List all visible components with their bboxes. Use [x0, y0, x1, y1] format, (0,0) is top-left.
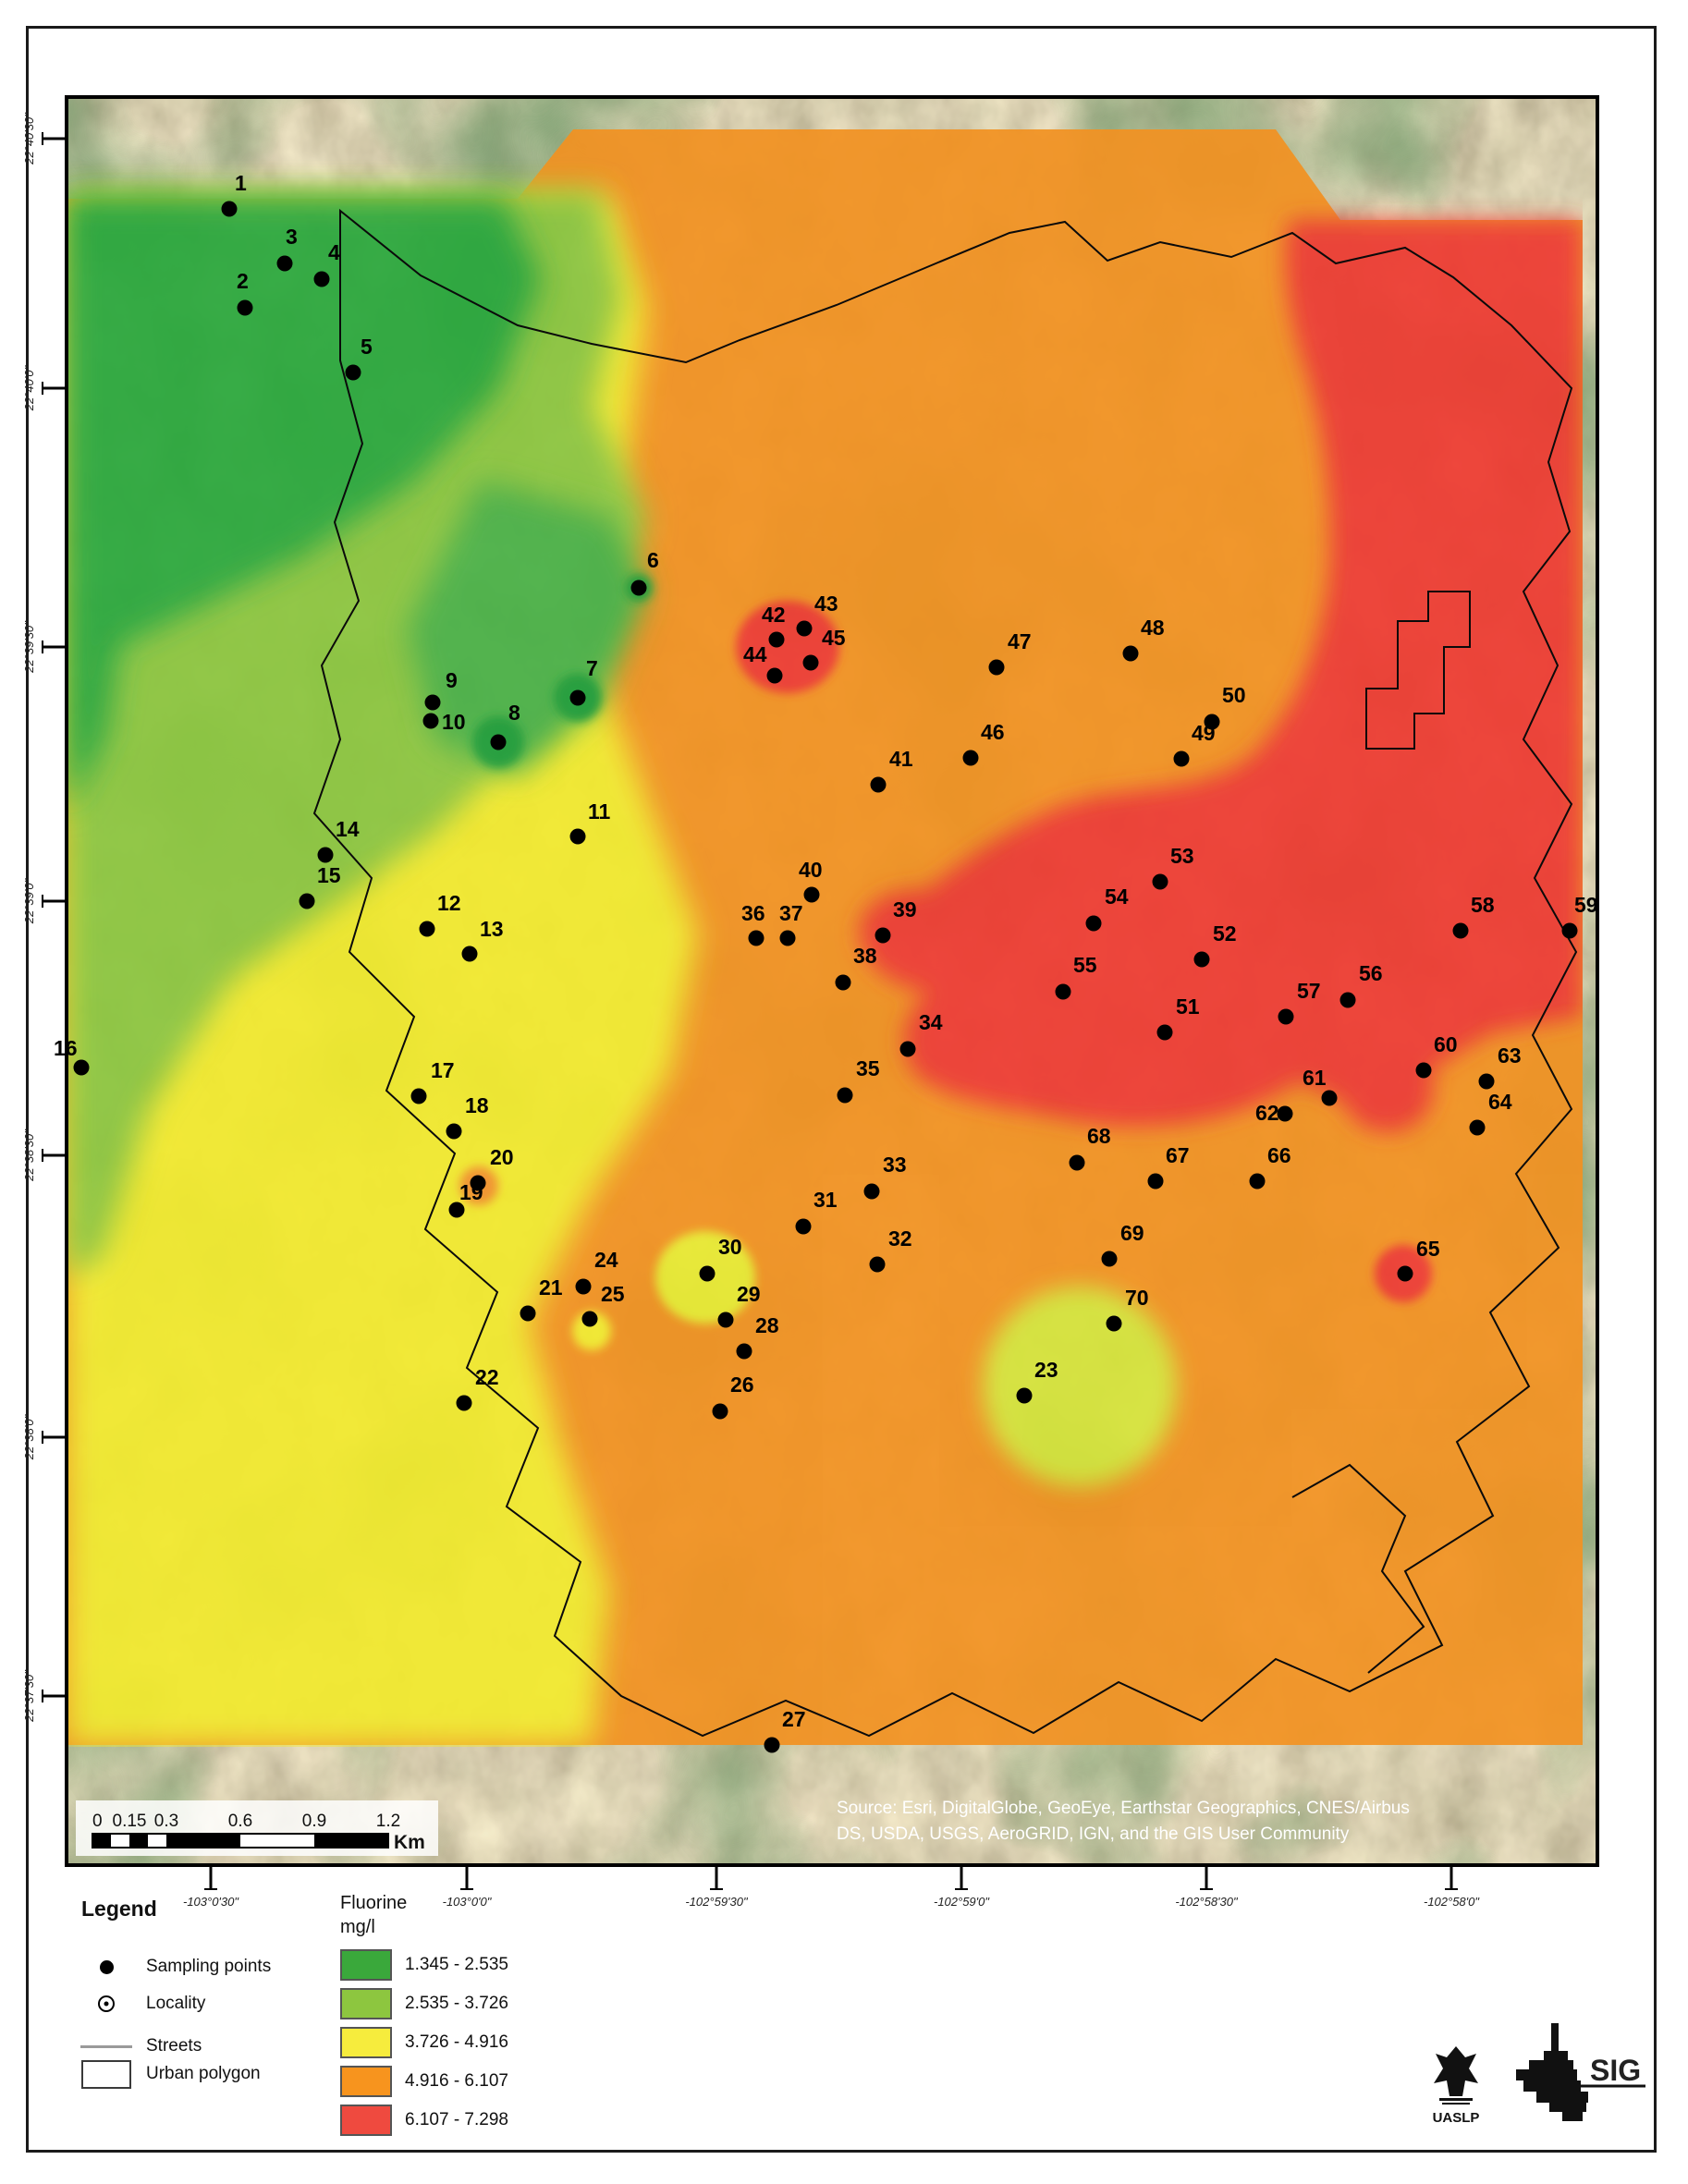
sampling-point-label: 30 — [718, 1235, 742, 1259]
sampling-point-dot — [796, 1219, 812, 1235]
sampling-point-label: 39 — [893, 897, 917, 921]
sampling-point-label: 51 — [1176, 994, 1200, 1019]
sampling-point-label: 20 — [490, 1145, 514, 1169]
sampling-point-dot — [764, 1738, 780, 1753]
sampling-point-label: 50 — [1222, 683, 1246, 707]
sampling-point-label: 53 — [1170, 844, 1194, 868]
sampling-point-label: 42 — [762, 603, 786, 627]
sampling-point-dot — [749, 931, 764, 946]
bottom-axis-label: -102°59'0" — [934, 1895, 990, 1909]
sampling-point-label: 23 — [1034, 1358, 1058, 1382]
fluorine-unit: mg/l — [340, 1917, 375, 1938]
sampling-point-label: 12 — [437, 891, 461, 915]
sampling-point-label: 45 — [822, 626, 846, 650]
sampling-point-label: 58 — [1471, 893, 1495, 917]
sampling-point-label: 59 — [1574, 893, 1598, 917]
sig-logo: SIG — [1516, 2023, 1645, 2121]
uaslp-logo: UASLP — [1433, 2046, 1480, 2126]
sampling-point-dot — [446, 1124, 462, 1140]
sampling-point-label: 17 — [431, 1058, 455, 1082]
sampling-point-dot — [700, 1266, 716, 1282]
sampling-point-dot — [804, 887, 820, 903]
attribution-line-1: Source: Esri, DigitalGlobe, GeoEye, Eart… — [837, 1799, 1410, 1818]
sampling-point-dot — [1453, 923, 1469, 939]
sampling-point-dot — [471, 1176, 486, 1191]
scale-bar-number: 0.15 — [113, 1812, 147, 1831]
sampling-point-dot — [1157, 1025, 1173, 1041]
urban-polygon-symbol — [80, 2059, 133, 2089]
sampling-point-label: 40 — [799, 858, 823, 882]
sampling-point-dot — [1416, 1063, 1432, 1079]
sampling-point-dot — [1398, 1266, 1413, 1282]
sampling-point-dot — [449, 1202, 465, 1218]
sampling-point-label: 21 — [539, 1275, 563, 1299]
locality-symbol — [80, 1989, 133, 2019]
sampling-point-label: 65 — [1416, 1237, 1440, 1261]
left-axis-label: 22°38'0" — [22, 1413, 36, 1460]
sampling-point-dot — [870, 1257, 886, 1273]
bottom-axis-label: -102°58'30" — [1175, 1895, 1239, 1909]
sampling-point-label: 41 — [889, 747, 913, 771]
sampling-point-label: 61 — [1303, 1066, 1327, 1090]
sampling-point-label: 7 — [586, 656, 598, 680]
sampling-point-dot — [314, 272, 330, 287]
sampling-point-label: 32 — [888, 1226, 912, 1251]
legend-item-label: Locality — [146, 1994, 205, 2014]
sampling-point-dot — [737, 1344, 752, 1360]
sampling-point-dot — [1107, 1316, 1122, 1332]
sampling-point-dot — [989, 660, 1005, 676]
sampling-point-dot — [576, 1279, 592, 1295]
sampling-point-dot — [1278, 1009, 1294, 1025]
sampling-point-label: 15 — [317, 863, 341, 887]
sampling-point-dot — [420, 921, 435, 937]
sampling-point-dot — [570, 829, 586, 845]
sampling-point-dot — [318, 848, 334, 863]
fluorine-class-range: 6.107 - 7.298 — [405, 2110, 508, 2130]
sampling-point-dot — [74, 1060, 90, 1076]
sampling-point-dot — [875, 928, 891, 944]
sampling-point-label: 3 — [286, 225, 298, 249]
bottom-axis-label: -103°0'0" — [443, 1895, 493, 1909]
legend-item-label: Streets — [146, 2036, 202, 2056]
sampling-point-dot — [1056, 984, 1071, 1000]
legend-title: Legend — [81, 1897, 157, 1922]
sampling-point-label: 35 — [856, 1056, 880, 1080]
sampling-point-dot — [1148, 1174, 1164, 1190]
sampling-point-label: 43 — [814, 592, 838, 616]
sampling-point-label: 4 — [328, 240, 340, 264]
sampling-point-label: 33 — [883, 1153, 907, 1177]
fluorine-class-row: 6.107 - 7.298 — [340, 2102, 508, 2139]
scale-bar: 00.150.30.60.91.2Km — [76, 1800, 438, 1856]
anomaly-yellowgreen-23-70 — [983, 1287, 1177, 1486]
fluorine-class-swatch — [340, 2066, 392, 2097]
fluorine-class-row: 2.535 - 3.726 — [340, 1985, 508, 2022]
sampling-point-label: 14 — [336, 817, 360, 841]
sampling-point-label: 25 — [601, 1282, 625, 1306]
sampling-point-dot — [803, 655, 819, 671]
sampling-point-dot — [1086, 916, 1102, 932]
sampling-point-label: 11 — [588, 799, 611, 824]
sampling-point-label: 8 — [508, 701, 520, 725]
fluorine-class-range: 2.535 - 3.726 — [405, 1994, 508, 2014]
fluorine-title: Fluorine — [340, 1893, 407, 1914]
fluorine-class-row: 3.726 - 4.916 — [340, 2024, 508, 2061]
sampling-point-dot — [769, 632, 785, 648]
sampling-point-dot — [1322, 1091, 1338, 1106]
fluorine-class-range: 4.916 - 6.107 — [405, 2071, 508, 2092]
scale-bar-number: 0.9 — [302, 1812, 326, 1831]
sampling-point-label: 67 — [1166, 1143, 1190, 1167]
scale-bar-number: 0.6 — [228, 1812, 252, 1831]
sampling-point-dot — [1278, 1106, 1293, 1122]
left-axis-label: 22°40'30" — [22, 112, 36, 165]
sampling-point-dot — [767, 668, 783, 684]
sampling-point-label: 66 — [1267, 1143, 1291, 1167]
sampling-point-label: 56 — [1359, 961, 1383, 985]
sampling-point-label: 46 — [981, 720, 1005, 744]
sampling-point-label: 44 — [743, 642, 767, 666]
sampling-point-label: 68 — [1087, 1124, 1111, 1148]
sampling-point-dot — [1205, 714, 1220, 730]
sampling-point-dot — [1102, 1251, 1118, 1267]
sampling-point-label: 52 — [1213, 921, 1237, 946]
sampling-point-label: 54 — [1105, 885, 1129, 909]
bottom-axis-label: -102°59'30" — [685, 1895, 749, 1909]
left-axis-label: 22°37'30" — [22, 1669, 36, 1723]
sampling-point-dot — [713, 1404, 728, 1420]
uaslp-logo-text: UASLP — [1433, 2110, 1480, 2126]
sampling-point-dot — [582, 1312, 598, 1327]
sampling-point-label: 31 — [813, 1188, 838, 1212]
sampling-point-label: 26 — [730, 1373, 754, 1397]
sampling-point-dot — [457, 1396, 472, 1411]
sampling-point-label: 36 — [741, 901, 765, 925]
sampling-point-label: 37 — [779, 901, 803, 925]
sampling-point-label: 28 — [755, 1313, 779, 1337]
sampling-point-dot — [1340, 993, 1356, 1008]
scale-bar-unit: Km — [394, 1832, 425, 1853]
legend-item-label: Urban polygon — [146, 2064, 261, 2084]
fluorine-class-swatch — [340, 2105, 392, 2136]
sampling-point-label: 64 — [1488, 1090, 1512, 1114]
sampling-point-dot — [570, 690, 586, 706]
sampling-point-dot — [300, 894, 315, 909]
fluorine-class-range: 1.345 - 2.535 — [405, 1955, 508, 1975]
sig-logo-text: SIG — [1590, 2054, 1641, 2087]
street-line-symbol — [80, 2031, 133, 2061]
sampling-point-dot — [963, 750, 979, 766]
sampling-point-dot — [780, 931, 796, 946]
sampling-point-dot — [718, 1312, 734, 1328]
sampling-point-label: 62 — [1255, 1101, 1279, 1125]
left-axis-label: 22°38'30" — [22, 1129, 36, 1182]
left-axis-label: 22°39'30" — [22, 620, 36, 674]
left-axis-label: 22°40'0" — [22, 364, 36, 411]
fluorine-class-swatch — [340, 2027, 392, 2058]
fluorine-class-swatch — [340, 1988, 392, 2019]
sampling-point-label: 9 — [446, 668, 458, 692]
sampling-point-label: 63 — [1498, 1043, 1522, 1068]
sampling-point-label: 60 — [1434, 1032, 1458, 1056]
fluorine-class-range: 3.726 - 4.916 — [405, 2032, 508, 2053]
sampling-point-dot — [631, 580, 647, 596]
sampling-point-dot — [462, 946, 478, 962]
bottom-axis-label: -103°0'30" — [183, 1895, 239, 1909]
page: Source: Esri, DigitalGlobe, GeoEye, Eart… — [0, 0, 1688, 2184]
sampling-point-label: 70 — [1125, 1286, 1149, 1310]
sampling-point-dot — [864, 1184, 880, 1200]
sampling-point-dot — [423, 714, 439, 729]
sampling-point-label: 5 — [361, 335, 373, 359]
fluorine-class-row: 4.916 - 6.107 — [340, 2063, 508, 2100]
sampling-point-label: 57 — [1297, 979, 1321, 1003]
scale-bar-number: 0 — [92, 1812, 103, 1831]
sampling-point-dot — [411, 1089, 427, 1104]
sampling-point-label: 27 — [782, 1707, 806, 1731]
legend-item-label: Sampling points — [146, 1957, 271, 1977]
sampling-point-dot — [425, 695, 441, 711]
sampling-point-dot — [1470, 1120, 1486, 1136]
sampling-point-dot — [797, 621, 813, 637]
sampling-point-dot — [1194, 952, 1210, 968]
sampling-point-dot — [520, 1306, 536, 1322]
sampling-point-label: 38 — [853, 944, 877, 968]
sampling-point-label: 13 — [480, 917, 504, 941]
sampling-point-dot — [838, 1088, 853, 1104]
sampling-point-dot — [1562, 923, 1578, 939]
sampling-point-dot — [1153, 874, 1168, 890]
sampling-point-label: 47 — [1008, 629, 1032, 653]
bottom-axis-label: -102°58'0" — [1424, 1895, 1480, 1909]
left-axis-label: 22°39'0" — [22, 877, 36, 924]
sampling-point-label: 55 — [1073, 953, 1097, 977]
fluorine-class-swatch — [340, 1949, 392, 1981]
map-figure: Source: Esri, DigitalGlobe, GeoEye, Eart… — [0, 0, 1688, 2184]
sampling-point-label: 2 — [237, 269, 249, 293]
sampling-point-dot — [836, 975, 851, 991]
fluorine-surface — [67, 129, 1583, 1745]
sampling-point-label: 29 — [737, 1282, 761, 1306]
sampling-point-dot — [491, 735, 507, 750]
sampling-point-dot — [1174, 751, 1190, 767]
sampling-point-dot — [346, 365, 361, 381]
sampling-point-dot — [222, 201, 238, 217]
sampling-point-dot — [1250, 1174, 1266, 1190]
attribution-line-2: DS, USDA, USGS, AeroGRID, IGN, and the G… — [837, 1824, 1350, 1844]
sampling-point-label: 48 — [1141, 616, 1165, 640]
sampling-point-label: 18 — [465, 1093, 489, 1117]
sampling-point-label: 24 — [594, 1248, 618, 1272]
scale-bar-number: 0.3 — [154, 1812, 178, 1831]
sampling-point-dot — [1479, 1074, 1495, 1090]
sampling-point-dot — [1070, 1155, 1085, 1171]
fluorine-class-row: 1.345 - 2.535 — [340, 1946, 508, 1983]
sampling-point-dot — [900, 1042, 916, 1057]
sampling-point-dot — [1123, 646, 1139, 662]
sampling-point-label: 6 — [647, 548, 659, 572]
sampling-point-label: 69 — [1120, 1221, 1144, 1245]
scale-bar-number: 1.2 — [376, 1812, 400, 1831]
sampling-point-label: 22 — [475, 1365, 499, 1389]
sampling-point-label: 1 — [235, 171, 247, 195]
sampling-point-label: 10 — [442, 710, 466, 734]
sampling-point-dot — [238, 300, 253, 316]
sampling-point-dot — [1017, 1388, 1033, 1404]
sampling-point-symbol — [80, 1952, 133, 1982]
sampling-point-dot — [277, 256, 293, 272]
sampling-point-dot — [871, 777, 887, 793]
sampling-point-label: 34 — [919, 1010, 943, 1034]
